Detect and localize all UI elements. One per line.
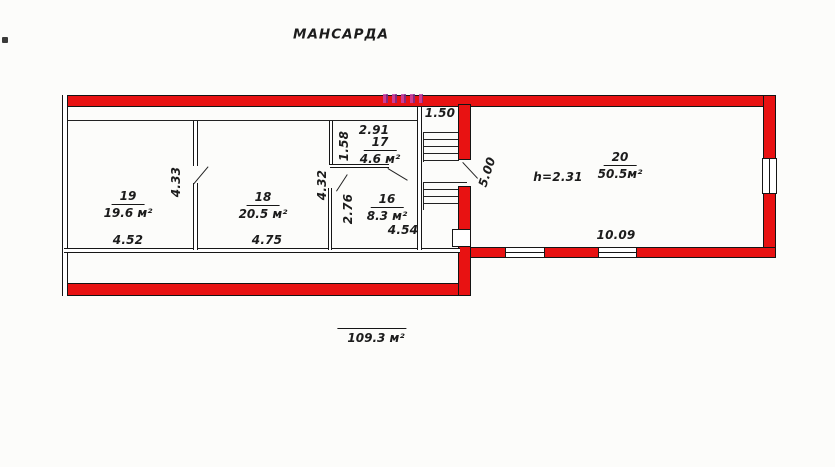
window-bottom-2 xyxy=(598,247,637,258)
floor-plan-scan: МАНСАРДА 19 19.6 м² 18 20.5 м² 17 4.6 м²… xyxy=(0,0,835,467)
duct-box xyxy=(452,229,471,247)
plan-title: МАНСАРДА xyxy=(293,28,389,42)
room-20-label: 20 50.5м² xyxy=(598,151,643,180)
room-19-area: 19.6 м² xyxy=(104,207,153,219)
door-swing-room20 xyxy=(462,162,478,179)
partition-19-18-upper xyxy=(193,121,198,166)
room-20-area: 50.5м² xyxy=(598,168,643,180)
scan-artifact xyxy=(383,94,423,103)
dim-room16-depth: 2.76 xyxy=(342,194,354,224)
dim-room19-depth: 4.33 xyxy=(170,167,182,197)
partition-18-17-upper xyxy=(329,121,333,165)
door-swing-room19 xyxy=(193,166,209,184)
room-17-area: 4.6 м² xyxy=(360,153,401,165)
total-area-label: 109.3 м² xyxy=(337,328,406,344)
window-bottom-1 xyxy=(505,247,545,258)
dim-room17-width: 2.91 xyxy=(359,124,389,136)
dim-room18-depth: 4.32 xyxy=(316,170,328,200)
wall-stairwell-upper xyxy=(458,104,471,160)
room-16-number: 16 xyxy=(371,193,404,208)
room-18-area: 20.5 м² xyxy=(239,208,288,220)
room-16-label: 16 8.3 м² xyxy=(367,193,408,222)
room-17-label: 17 4.6 м² xyxy=(360,136,401,165)
scan-speck xyxy=(2,37,8,43)
wall-left-thin xyxy=(62,95,68,296)
room-18-number: 18 xyxy=(247,191,280,206)
room-17-number: 17 xyxy=(364,136,397,151)
dim-room20-width: 10.09 xyxy=(597,229,636,241)
dim-stair-width: 1.50 xyxy=(425,107,455,119)
stair-flight-upper xyxy=(423,132,459,162)
floor-edge-line xyxy=(64,248,460,253)
door-swing-room16 xyxy=(336,174,348,191)
dim-room16-width: 4.54 xyxy=(388,224,418,236)
room-20-number: 20 xyxy=(604,151,637,166)
door-swing-room17 xyxy=(387,168,407,181)
ceiling-slope-line xyxy=(66,120,418,122)
dim-room18-width: 4.75 xyxy=(252,234,282,246)
dim-room20-depth: 5.00 xyxy=(477,156,498,189)
dim-room17-depth: 1.58 xyxy=(338,131,350,161)
wall-bottom-left-block xyxy=(62,283,471,296)
room-16-area: 8.3 м² xyxy=(367,210,408,222)
window-right-wall xyxy=(762,158,777,194)
dim-room19-width: 4.52 xyxy=(113,234,143,246)
room-18-label: 18 20.5 м² xyxy=(239,191,288,220)
room-19-label: 19 19.6 м² xyxy=(104,190,153,219)
room-20-ceiling-height: h=2.31 xyxy=(533,171,582,183)
room-19-number: 19 xyxy=(112,190,145,205)
total-area-value: 109.3 м² xyxy=(337,328,406,344)
partition-19-18-lower xyxy=(193,183,198,250)
